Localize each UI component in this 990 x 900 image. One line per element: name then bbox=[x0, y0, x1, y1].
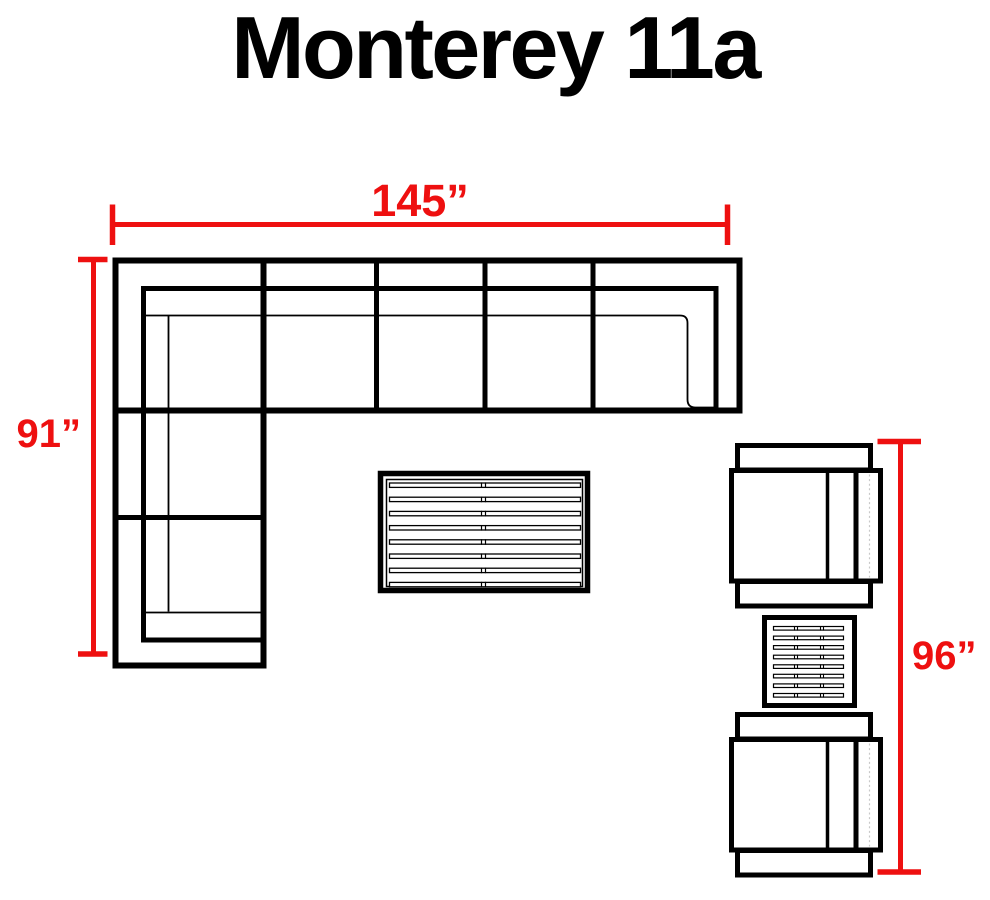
dimension-left-height: 91” bbox=[17, 259, 108, 655]
sofa-cushion-line-left bbox=[144, 316, 262, 613]
diagram-canvas: Monterey 11a bbox=[0, 0, 990, 900]
dimension-lines: 145” 91” 96” bbox=[17, 175, 977, 872]
sofa-left-column-outline bbox=[116, 261, 264, 666]
sofa-top-row-outline bbox=[116, 261, 740, 411]
dimension-width-label: 145” bbox=[371, 175, 469, 226]
sofa-seat-dividers bbox=[113, 258, 593, 518]
coffee-table bbox=[381, 474, 588, 591]
sectional-sofa bbox=[113, 258, 740, 666]
club-chair-bottom bbox=[732, 715, 881, 876]
side-table-slats bbox=[774, 626, 844, 698]
dimension-width: 145” bbox=[113, 175, 728, 245]
dimension-right-height: 96” bbox=[878, 442, 977, 873]
dimension-right-label: 96” bbox=[912, 634, 977, 678]
club-chair-top bbox=[732, 446, 881, 607]
side-table bbox=[765, 618, 855, 706]
coffee-table-slats bbox=[390, 482, 581, 587]
dimension-left-label: 91” bbox=[17, 412, 82, 456]
side-table-frame bbox=[765, 618, 855, 706]
sofa-cushion-line-top bbox=[144, 316, 714, 408]
furniture-layout-diagram: 145” 91” 96” bbox=[0, 0, 990, 900]
